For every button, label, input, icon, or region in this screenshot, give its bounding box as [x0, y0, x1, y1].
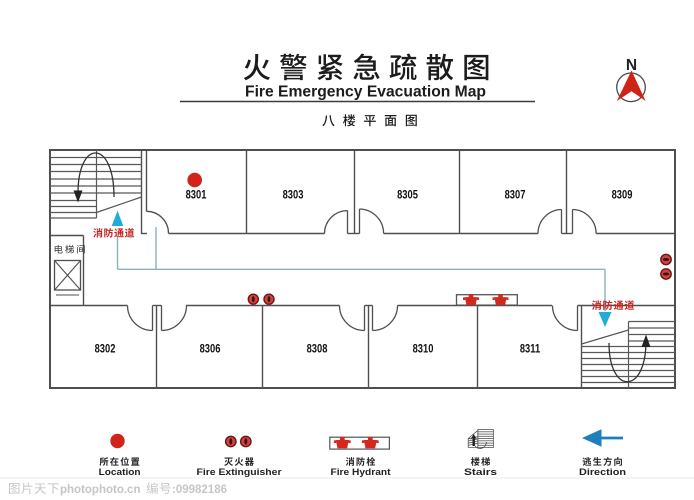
- svg-text:8307: 8307: [505, 188, 526, 201]
- svg-text:8305: 8305: [397, 188, 418, 201]
- svg-text:8306: 8306: [200, 342, 221, 355]
- svg-text:8302: 8302: [95, 342, 116, 355]
- svg-text:Direction: Direction: [579, 467, 626, 478]
- svg-text:Fire Extinguisher: Fire Extinguisher: [197, 467, 282, 478]
- svg-text:Fire Hydrant: Fire Hydrant: [331, 467, 392, 478]
- svg-text:Stairs: Stairs: [464, 467, 497, 478]
- svg-text:8310: 8310: [413, 342, 434, 355]
- svg-text:photophoto.cn: photophoto.cn: [60, 484, 140, 496]
- svg-text:8309: 8309: [612, 188, 633, 201]
- svg-text:Location: Location: [99, 467, 141, 478]
- svg-text:8308: 8308: [307, 342, 328, 355]
- svg-text:8301: 8301: [186, 188, 207, 201]
- svg-text::09982186: :09982186: [172, 484, 227, 496]
- svg-text:Fire Emergency Evacuation Map: Fire Emergency Evacuation Map: [245, 84, 486, 101]
- svg-text:8303: 8303: [283, 188, 304, 201]
- svg-text:8311: 8311: [520, 342, 540, 355]
